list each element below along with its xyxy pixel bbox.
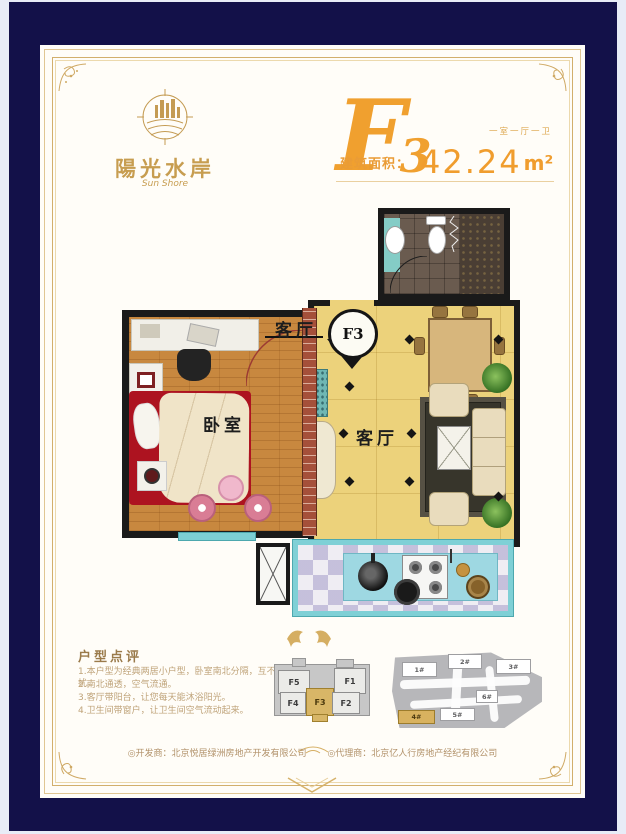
pouf-floral bbox=[188, 494, 216, 522]
review-item: 3.客厅带阳台，让您每天能沐浴阳光。 bbox=[78, 692, 296, 704]
interior-wall bbox=[302, 308, 317, 536]
siteplan: 1# 2# 3# 6# 5# 4# bbox=[392, 646, 542, 728]
unit-f2: F2 bbox=[332, 692, 360, 714]
bath-door-arc bbox=[390, 256, 428, 294]
building-5: 5# bbox=[440, 708, 475, 721]
pan bbox=[394, 579, 420, 605]
burner bbox=[429, 561, 442, 574]
area-value: 42.24 bbox=[420, 148, 522, 177]
flyer-page: 陽光水岸 Sun Shore F 3 一室一厅一卫 建筑面积： 42.24 m² bbox=[40, 45, 585, 798]
dining-chair bbox=[414, 337, 425, 355]
building-1: 1# bbox=[402, 662, 437, 677]
duct-shaft bbox=[256, 543, 290, 605]
bird-ornament-icon bbox=[281, 623, 337, 649]
footer-credits: ◎开发商：北京悦居绿洲房地产开发有限公司 ◎代理商：北京亿人行房地产经纪有限公司 bbox=[40, 746, 585, 759]
title-underline bbox=[336, 181, 554, 182]
plant bbox=[482, 363, 512, 393]
entry-door-gap bbox=[330, 300, 374, 306]
plate-small bbox=[456, 563, 470, 577]
balcony-kitchen bbox=[293, 540, 513, 616]
entry-marker: F3 bbox=[328, 309, 378, 359]
coffee-table bbox=[437, 426, 471, 470]
unit-f4: F4 bbox=[280, 692, 306, 714]
area-row: 建筑面积： 42.24 m² bbox=[340, 133, 556, 177]
chevron-ornament-icon bbox=[286, 776, 338, 798]
sofa bbox=[472, 408, 506, 496]
flower-table bbox=[137, 461, 167, 491]
desk bbox=[131, 319, 259, 351]
bedroom-label: 卧室 bbox=[203, 411, 245, 436]
dining-chair bbox=[432, 306, 448, 318]
sink bbox=[385, 226, 405, 254]
building-3: 3# bbox=[496, 659, 531, 674]
bathroom bbox=[378, 208, 510, 300]
framed-art bbox=[137, 372, 155, 388]
corner-ornament-icon bbox=[57, 62, 87, 92]
area-label: 建筑面积： bbox=[340, 153, 410, 172]
review-title: 户型点评 bbox=[78, 646, 142, 665]
agent-credit: ◎代理商：北京亿人行房地产经纪有限公司 bbox=[327, 749, 497, 759]
floorplate-tab-gold bbox=[312, 714, 328, 722]
living-label: 客厅 bbox=[356, 424, 398, 449]
armchair bbox=[429, 383, 469, 417]
desk-chair bbox=[177, 349, 211, 381]
review-item: 4.卫生间带窗户，让卫生间空气流动起来。 bbox=[78, 705, 296, 717]
pouf-plain bbox=[218, 475, 244, 501]
floorplate-tab bbox=[336, 659, 354, 668]
desk-laptop bbox=[186, 323, 219, 347]
sunshore-logo-icon bbox=[133, 87, 197, 151]
desk-item bbox=[140, 324, 160, 338]
wok bbox=[358, 561, 388, 591]
flower bbox=[144, 468, 160, 484]
burner bbox=[429, 581, 442, 594]
building-6: 6# bbox=[476, 690, 498, 703]
developer-credit: ◎开发商：北京悦居绿洲房地产开发有限公司 bbox=[128, 749, 307, 759]
shower-area bbox=[460, 214, 504, 294]
building-2: 2# bbox=[448, 654, 482, 669]
area-unit: m² bbox=[524, 151, 554, 175]
unit-f1: F1 bbox=[334, 668, 366, 694]
dining-chair bbox=[462, 306, 478, 318]
shaft-x-icon bbox=[260, 547, 286, 601]
plant bbox=[482, 498, 512, 528]
pouf-floral bbox=[244, 494, 272, 522]
plate-large bbox=[466, 575, 490, 599]
living-label-top: 客厅 bbox=[275, 316, 317, 341]
corner-ornament-icon bbox=[538, 62, 568, 92]
building-4-highlight: 4# bbox=[398, 710, 435, 724]
shower-hose-icon bbox=[448, 216, 460, 252]
burner bbox=[409, 561, 422, 574]
unit-f3-highlight: F3 bbox=[306, 688, 334, 716]
toilet-bowl bbox=[428, 226, 446, 254]
review-item: 2.南北通透，空气流通。 bbox=[78, 679, 296, 691]
entry-marker-label: F3 bbox=[342, 325, 363, 343]
armchair bbox=[429, 492, 469, 526]
toilet-tank bbox=[426, 216, 446, 225]
floorplate-tab bbox=[292, 658, 306, 667]
side-cabinet bbox=[314, 421, 336, 499]
floorplan: F3 卧室 客厅 客厅 bbox=[115, 205, 512, 618]
teal-rug bbox=[178, 532, 256, 541]
wok-handle bbox=[371, 553, 375, 563]
knife bbox=[450, 549, 452, 563]
brand-name-en: Sun Shore bbox=[100, 179, 230, 189]
